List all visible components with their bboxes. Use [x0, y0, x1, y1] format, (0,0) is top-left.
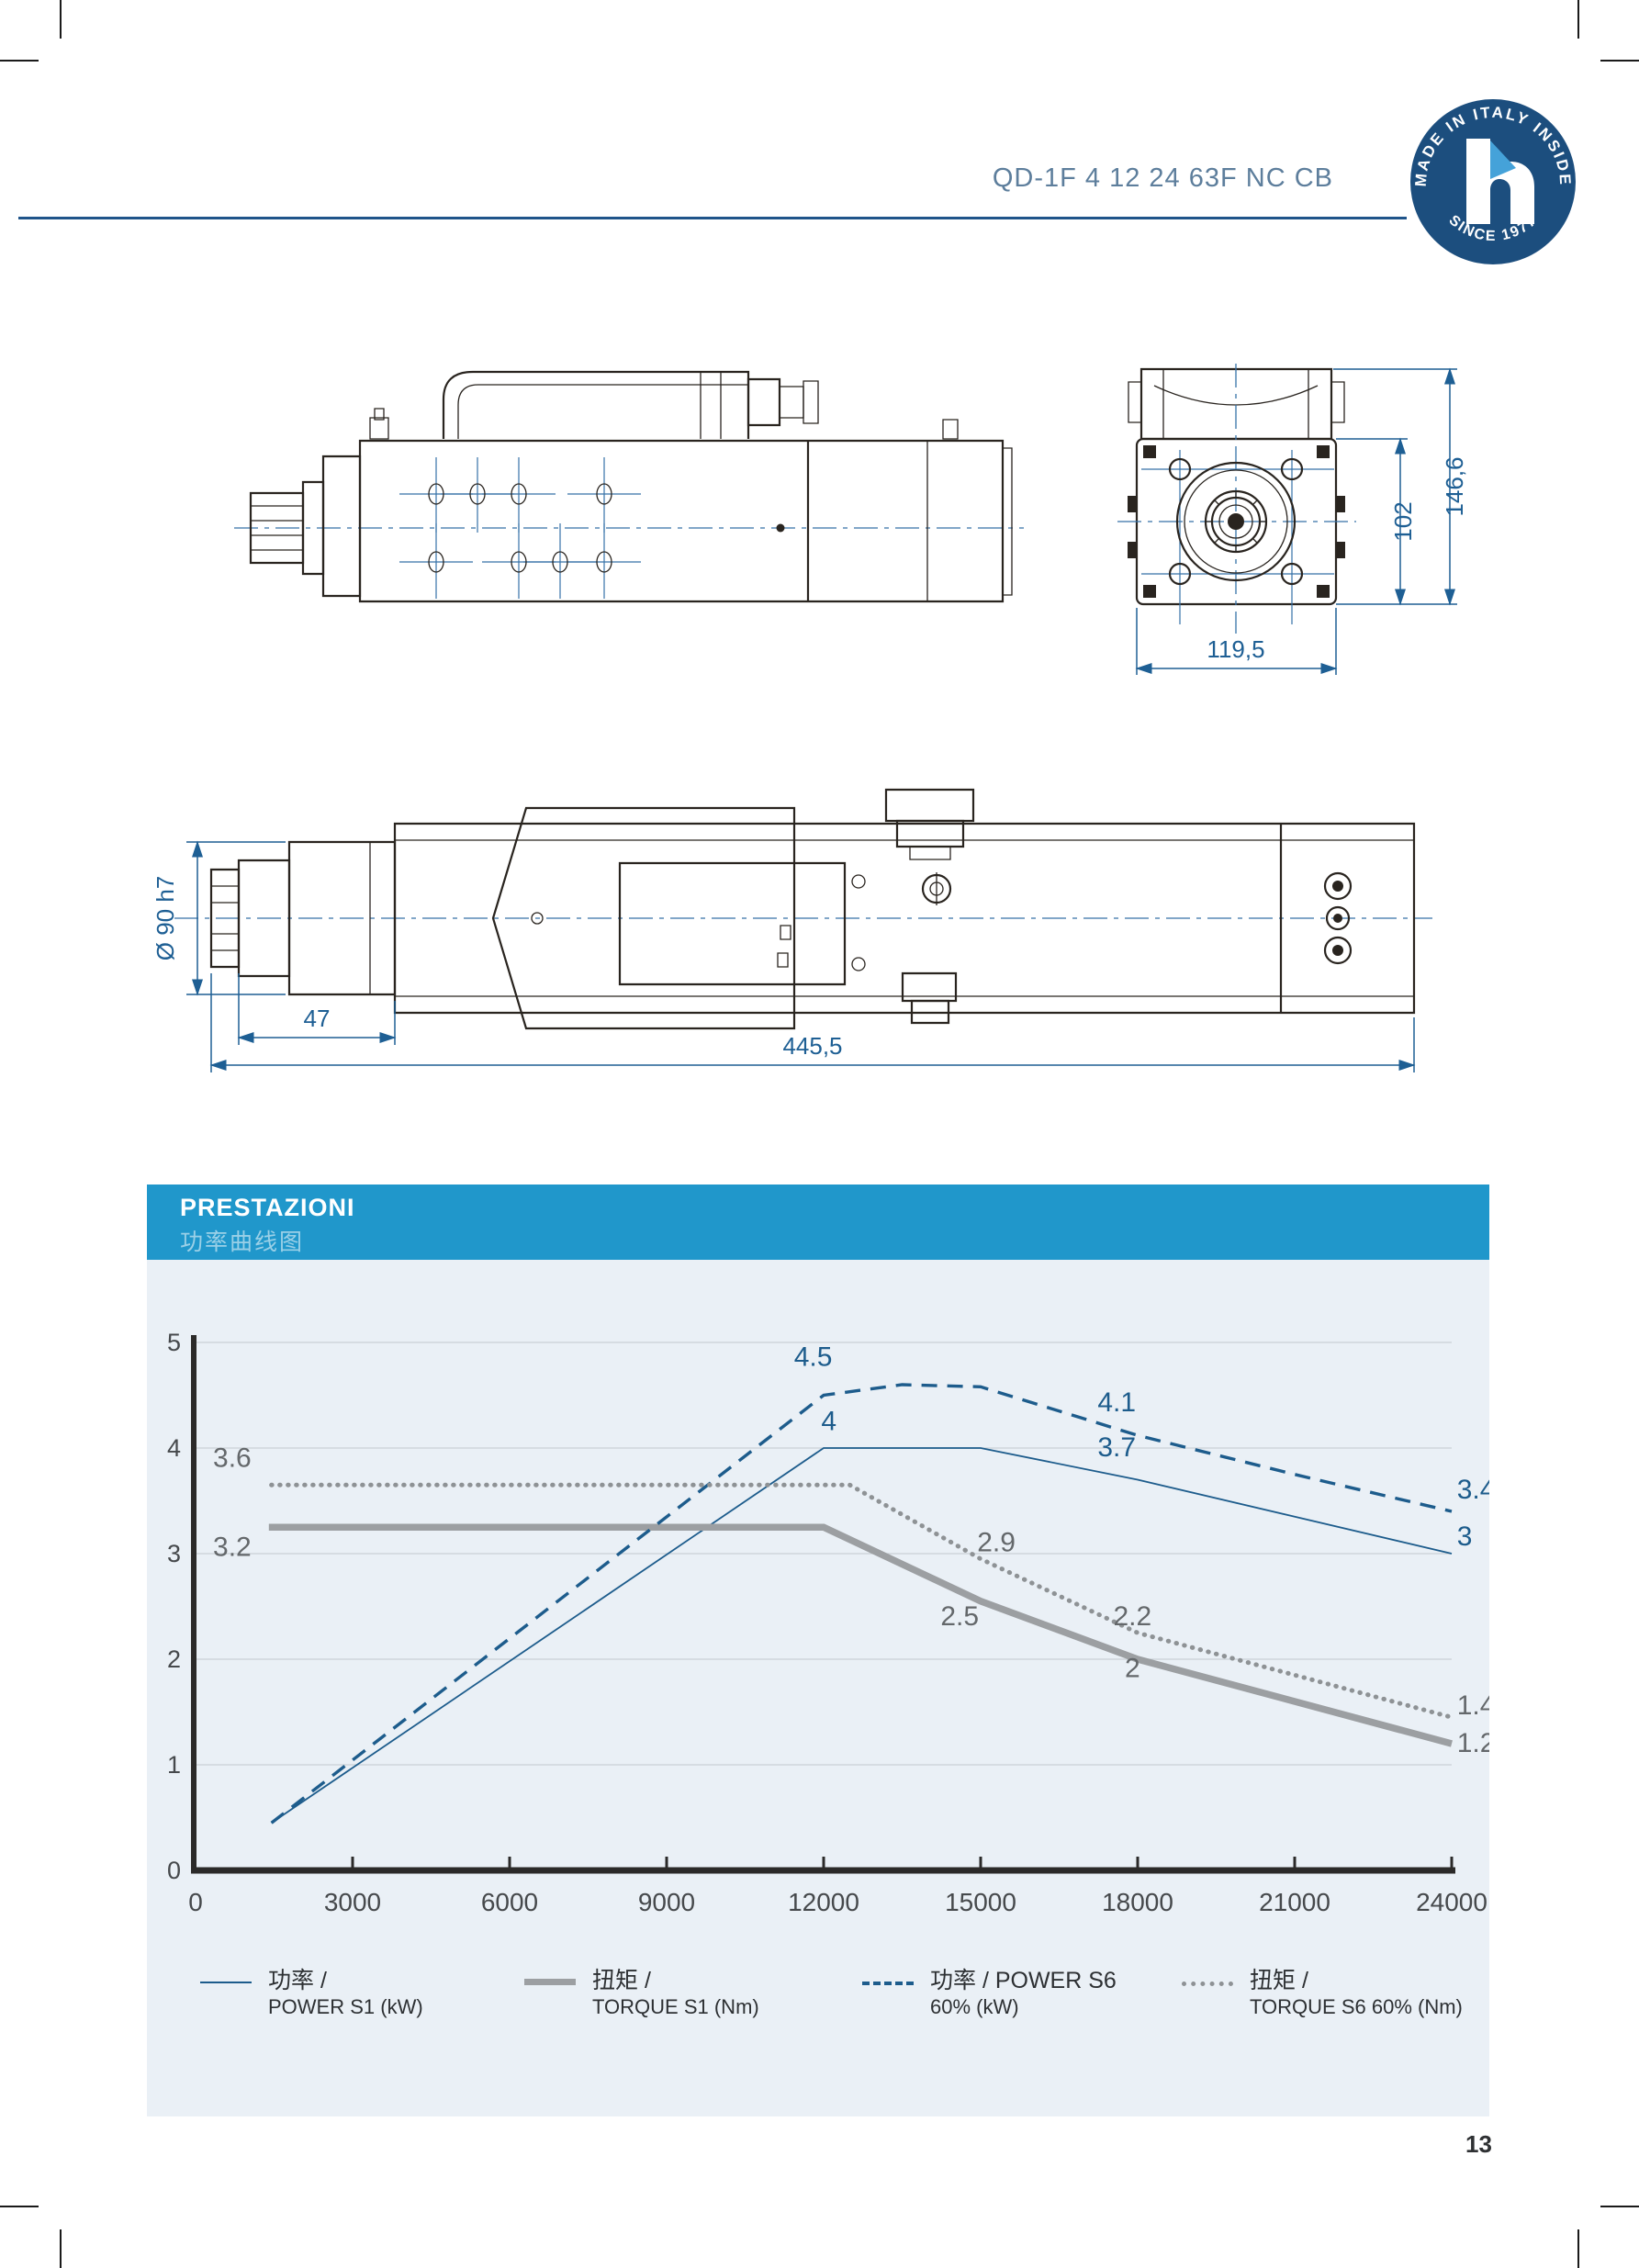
product-model-title: QD-1F 4 12 24 63F NC CB — [993, 163, 1333, 194]
y-tick-label: 1 — [167, 1751, 181, 1779]
series-dotted — [272, 1485, 1452, 1717]
value-label: 1.2 — [1457, 1728, 1489, 1758]
made-in-italy-badge: MADE IN ITALY INSIDE SINCE 1977 — [1408, 96, 1578, 267]
cable-gland — [748, 379, 780, 425]
y-tick-label: 0 — [167, 1857, 181, 1884]
legend-label-en: TORQUE S1 (Nm) — [592, 1994, 759, 2019]
crop-mark — [0, 2206, 39, 2207]
mounting-holes — [399, 457, 641, 599]
legend-item: 功率 / POWER S660% (kW) — [862, 1967, 1117, 2019]
legend-label-en: 60% (kW) — [930, 1994, 1117, 2019]
legend-label-en: TORQUE S6 60% (Nm) — [1250, 1994, 1463, 2019]
value-label: 3.4 — [1457, 1475, 1489, 1505]
x-tick-label: 18000 — [1102, 1888, 1173, 1916]
front-flange — [323, 456, 360, 596]
vent-screw — [943, 420, 958, 439]
legend-label-zh: 功率 / — [268, 1967, 423, 1994]
performance-chart: 0300060009000120001500018000210002400001… — [147, 1260, 1489, 1967]
value-label: 3 — [1457, 1521, 1473, 1552]
dim-body-height: 102 — [1389, 501, 1417, 541]
dim-nose-diameter: Ø 90 h7 — [152, 876, 179, 961]
series-solid-thick — [269, 1527, 1452, 1744]
dim-total-height: 146,6 — [1441, 456, 1468, 516]
crop-mark — [60, 2229, 62, 2268]
datasheet-page: QD-1F 4 12 24 63F NC CB MADE IN ITALY IN… — [0, 0, 1639, 2268]
side-view-drawing — [234, 354, 1024, 620]
terminal-box — [443, 372, 748, 439]
y-tick-label: 2 — [167, 1645, 181, 1673]
crop-mark — [0, 60, 39, 62]
chart-legend: 功率 /POWER S1 (kW)扭矩 /TORQUE S1 (Nm)功率 / … — [147, 1967, 1489, 2077]
crop-mark — [1577, 0, 1579, 39]
crop-mark — [1600, 60, 1639, 62]
value-label: 4.5 — [794, 1342, 833, 1372]
legend-item: 扭矩 /TORQUE S6 60% (Nm) — [1182, 1967, 1463, 2019]
spindle-body — [360, 441, 1003, 601]
x-tick-label: 6000 — [481, 1888, 538, 1916]
dim-total-length: 445,5 — [782, 1032, 842, 1060]
legend-label-zh: 功率 / POWER S6 — [930, 1967, 1117, 1994]
legend-item: 功率 /POWER S1 (kW) — [200, 1967, 423, 2019]
series-dashed — [272, 1385, 1452, 1823]
y-tick-label: 3 — [167, 1540, 181, 1567]
top-view-drawing: Ø 90 h7 47 445,5 — [152, 753, 1437, 1083]
legend-swatch-solid-thin — [200, 1982, 252, 1983]
electric-panel — [620, 863, 845, 984]
x-tick-label: 12000 — [788, 1888, 859, 1916]
legend-label-zh: 扭矩 / — [1250, 1967, 1463, 1994]
legend-label-en: POWER S1 (kW) — [268, 1994, 423, 2019]
x-tick-label: 0 — [188, 1888, 203, 1916]
legend-swatch-solid-thick — [524, 1979, 576, 1985]
legend-swatch-dashed — [862, 1982, 914, 1985]
crop-mark — [60, 0, 62, 39]
legend-item: 扭矩 /TORQUE S1 (Nm) — [524, 1967, 759, 2019]
value-label: 3.7 — [1097, 1432, 1136, 1463]
x-tick-label: 15000 — [945, 1888, 1016, 1916]
dim-nose-length: 47 — [304, 1005, 331, 1032]
series-solid-thin — [272, 1448, 1452, 1823]
page-number: 13 — [1465, 2130, 1492, 2159]
x-tick-label: 9000 — [638, 1888, 695, 1916]
value-label: 2.5 — [940, 1601, 979, 1632]
front-view-drawing: 102 146,6 119,5 — [1116, 358, 1483, 693]
value-label: 1.4 — [1457, 1690, 1489, 1721]
value-label: 2.9 — [977, 1528, 1016, 1558]
panel-title: PRESTAZIONI — [180, 1194, 1489, 1222]
y-tick-label: 5 — [167, 1329, 181, 1356]
x-tick-label: 24000 — [1416, 1888, 1487, 1916]
x-tick-label: 21000 — [1259, 1888, 1330, 1916]
value-label: 2.2 — [1113, 1601, 1151, 1632]
dim-width: 119,5 — [1207, 635, 1264, 663]
crop-mark — [1600, 2206, 1639, 2207]
panel-subtitle-zh: 功率曲线图 — [180, 1224, 1489, 1257]
value-label: 4.1 — [1097, 1387, 1136, 1418]
x-tick-label: 3000 — [324, 1888, 381, 1916]
legend-swatch-dotted — [1182, 1982, 1233, 1986]
value-label: 3.2 — [213, 1532, 252, 1562]
value-label: 4 — [821, 1406, 836, 1436]
legend-label-zh: 扭矩 / — [592, 1967, 759, 1994]
performance-header: PRESTAZIONI 功率曲线图 — [147, 1185, 1489, 1260]
value-label: 3.6 — [213, 1443, 252, 1474]
header-divider — [18, 217, 1407, 219]
value-label: 2 — [1125, 1654, 1140, 1684]
crop-mark — [1577, 2229, 1579, 2268]
y-tick-label: 4 — [167, 1434, 181, 1462]
